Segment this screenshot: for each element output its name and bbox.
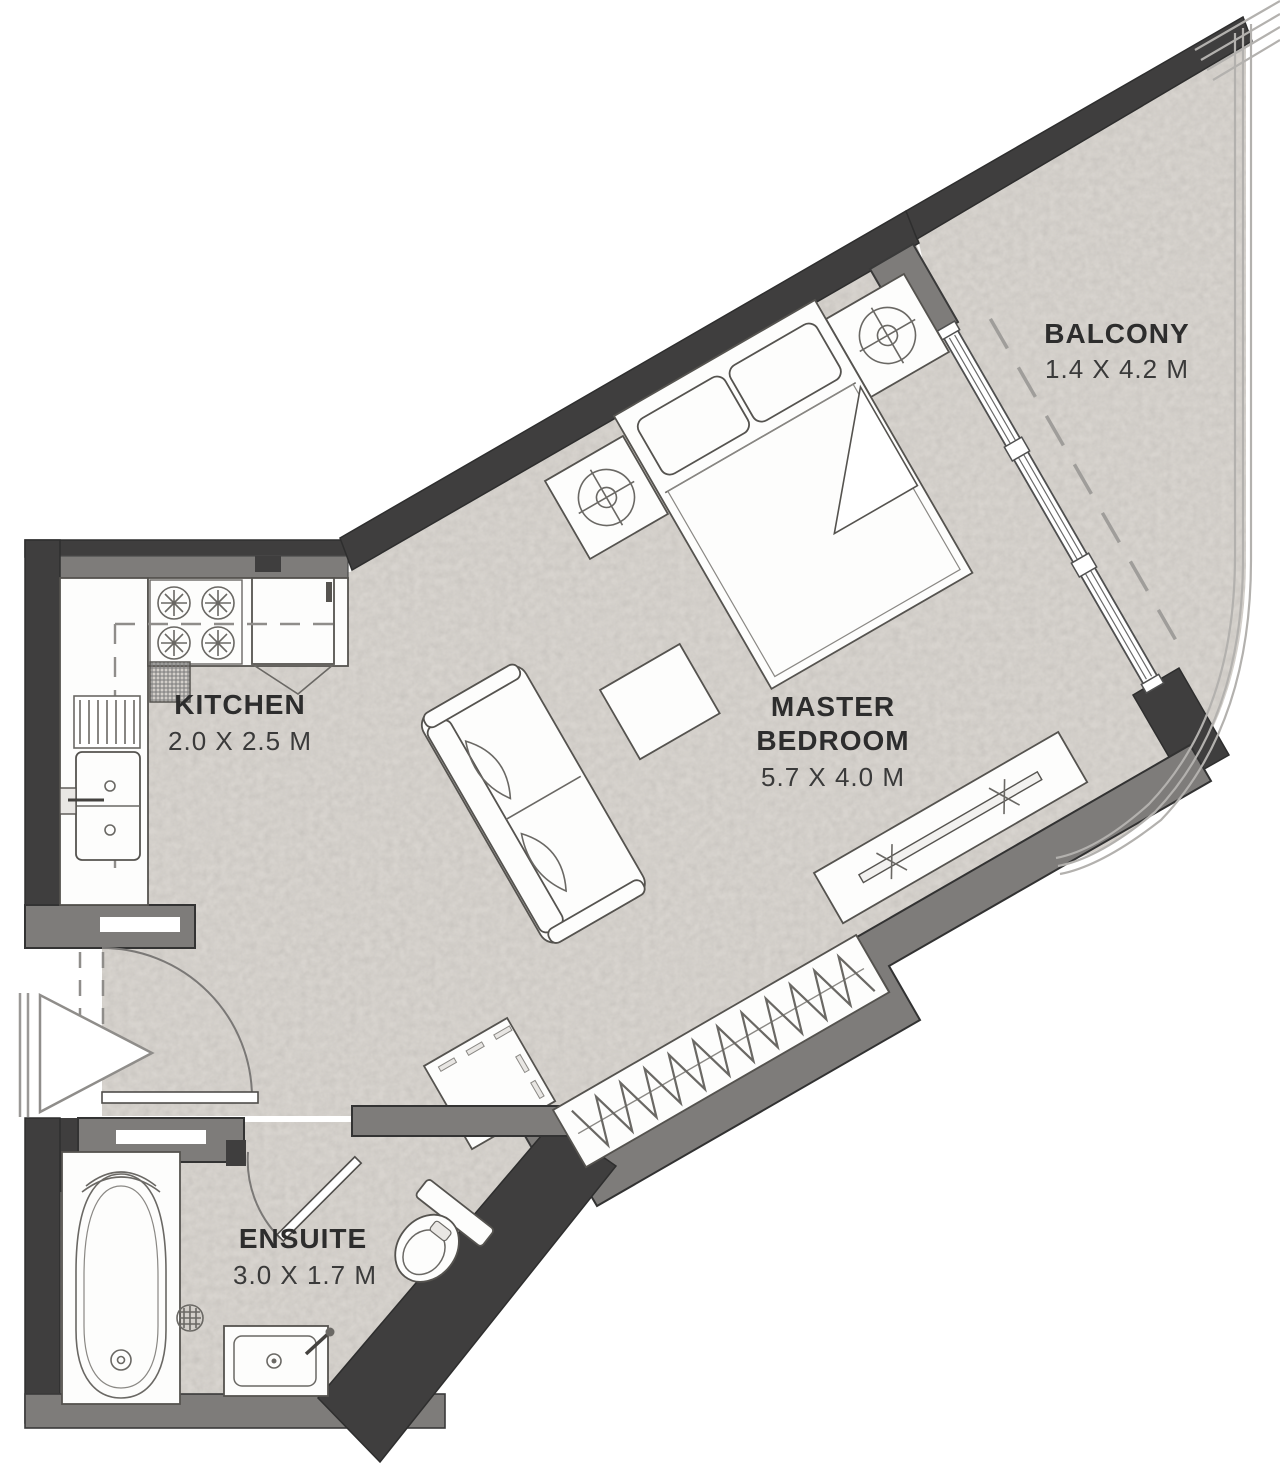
wall-left-lower [25,1118,60,1423]
floor-plan-drawing: KITCHEN 2.0 X 2.5 M MASTER BEDROOM 5.7 X… [0,0,1280,1470]
vanity-sink-icon [224,1326,335,1396]
balcony-label: BALCONY [1044,318,1189,349]
balcony-dims: 1.4 X 4.2 M [1045,354,1189,384]
wall-column-block [255,556,281,572]
wall-slot-kitchen-stub [100,917,180,932]
entry-door-leaf [102,1092,258,1103]
wall-kitchen-top-inner [56,556,348,580]
master-bedroom-dims: 5.7 X 4.0 M [761,762,905,792]
bathtub-icon [62,1152,180,1404]
wall-corridor [352,1106,568,1136]
floor-drain-icon [177,1305,203,1331]
wall-kitchen-top [25,540,352,557]
floor-plan-page: KITCHEN 2.0 X 2.5 M MASTER BEDROOM 5.7 X… [0,0,1280,1470]
wall-block-door-frame [226,1140,246,1166]
drain-board-icon [74,696,140,748]
wall-left-upper [25,540,60,908]
kitchen-label: KITCHEN [174,689,305,720]
wall-slot-ensuite-stub [116,1130,206,1144]
kitchen-dims: 2.0 X 2.5 M [168,726,312,756]
ensuite-dims: 3.0 X 1.7 M [233,1260,377,1290]
master-bedroom-label-line2: BEDROOM [756,725,909,756]
ensuite-label: ENSUITE [239,1223,367,1254]
master-bedroom-label-line1: MASTER [771,691,895,722]
